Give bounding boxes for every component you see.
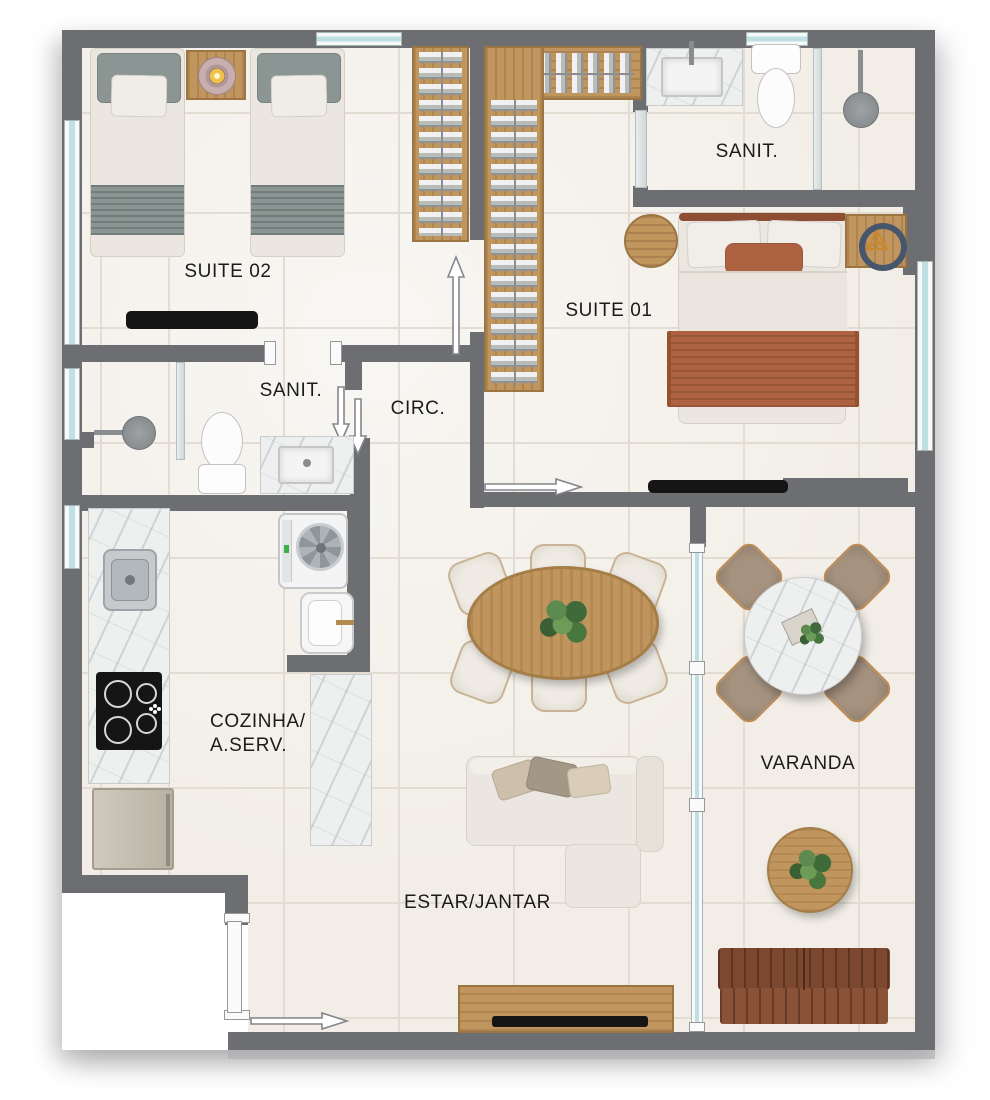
leather-bench [718, 948, 890, 1024]
window [316, 32, 402, 46]
wall [228, 1032, 935, 1050]
single-bed [90, 48, 185, 257]
toilet [751, 44, 801, 132]
faucet [125, 575, 135, 585]
nightstand [186, 50, 246, 100]
window [64, 368, 80, 440]
burner [104, 716, 132, 744]
wall [82, 345, 268, 362]
toilet-bowl [757, 68, 795, 128]
entry-door-swing-arrow [250, 1010, 350, 1032]
wall [690, 507, 706, 547]
wardrobe [412, 46, 469, 242]
room-label-sanit02: SANIT. [231, 380, 351, 402]
sofa-arm [636, 756, 664, 852]
shower-glass [176, 362, 185, 460]
floor-plan: SUITE 02 SANIT. CIRC. SUITE 01 SANIT. CO… [0, 0, 990, 1100]
bench-divider [803, 948, 805, 990]
sofa-chaise [565, 844, 641, 908]
faucet [689, 41, 694, 65]
refrigerator [92, 788, 174, 870]
balcony-table [744, 577, 862, 695]
tv [126, 311, 258, 329]
tray-plant [797, 620, 827, 648]
door-frame [689, 1022, 705, 1032]
door-frame [689, 798, 705, 812]
dining-table [467, 566, 659, 680]
table-plant [780, 837, 845, 901]
window [64, 505, 80, 569]
bathroom-door-opening [635, 110, 647, 188]
cooktop [96, 672, 162, 750]
door-frame [689, 543, 705, 553]
room-label-cozinha: COZINHA/A.SERV. [210, 710, 380, 758]
toilet-bowl [201, 412, 243, 470]
room-label-estar: ESTAR/JANTAR [395, 892, 560, 914]
blanket [667, 331, 859, 407]
room-label-varanda: VARANDA [738, 753, 878, 775]
window [917, 261, 933, 451]
cozinha-line1: COZINHA/ [210, 711, 306, 732]
wall [783, 478, 908, 494]
suite02-door-swing-arrow [446, 255, 466, 355]
door-frame [689, 661, 705, 675]
washing-machine [278, 513, 348, 589]
table-plant [530, 588, 601, 654]
burner [136, 713, 157, 734]
nightstand [845, 214, 907, 268]
room-label-suite01: SUITE 01 [539, 300, 679, 322]
faucet [336, 620, 354, 625]
blanket [251, 185, 344, 235]
balcony-glass-door [691, 547, 703, 1032]
wall [470, 332, 484, 508]
hanging-clothes [419, 52, 462, 236]
toilet [198, 412, 246, 496]
cozinha-line2: A.SERV. [210, 735, 287, 756]
wall [640, 190, 935, 207]
coffee-table [767, 827, 853, 913]
cooktop-knobs [153, 704, 157, 708]
headboard [679, 213, 847, 221]
tv [648, 480, 788, 493]
blanket [91, 185, 184, 235]
sink-counter [260, 436, 354, 494]
single-bed [250, 48, 345, 257]
faucet [303, 459, 311, 467]
counter-peninsula [310, 674, 372, 846]
washer-indicator [284, 545, 289, 553]
tv [492, 1016, 648, 1027]
burner [136, 683, 157, 704]
toilet-tank [198, 464, 246, 494]
shower-glass [813, 48, 822, 190]
window [64, 120, 80, 345]
shower-head [843, 92, 879, 128]
wall [62, 875, 248, 893]
sofa [466, 756, 664, 910]
entry-door-leaf [227, 921, 242, 1013]
door-frame [330, 341, 342, 365]
pillow [111, 75, 168, 118]
round-stool [624, 214, 678, 268]
double-bed [678, 212, 846, 424]
laundry-sink [300, 592, 354, 654]
washer-hub [316, 543, 326, 553]
room-label-sanit01: SANIT. [687, 141, 807, 163]
lamp-glow [209, 68, 225, 84]
decor-triangle [865, 229, 889, 253]
hanging-clothes [491, 100, 537, 386]
pillow [566, 763, 612, 799]
room-label-circ: CIRC. [358, 398, 478, 420]
pillow [271, 75, 328, 118]
fridge-handle [166, 794, 170, 866]
wall-shadow-strip [228, 1050, 935, 1059]
sink-counter [646, 48, 743, 106]
suite01-door-swing-arrow [484, 476, 584, 498]
wall [470, 30, 484, 240]
door-frame [264, 341, 276, 365]
room-label-suite02: SUITE 02 [158, 261, 298, 283]
bench-seat [720, 988, 888, 1024]
wardrobe [484, 46, 544, 392]
burner [104, 680, 132, 708]
wall [915, 30, 935, 1050]
wall [287, 655, 370, 672]
shower-head [122, 416, 156, 450]
